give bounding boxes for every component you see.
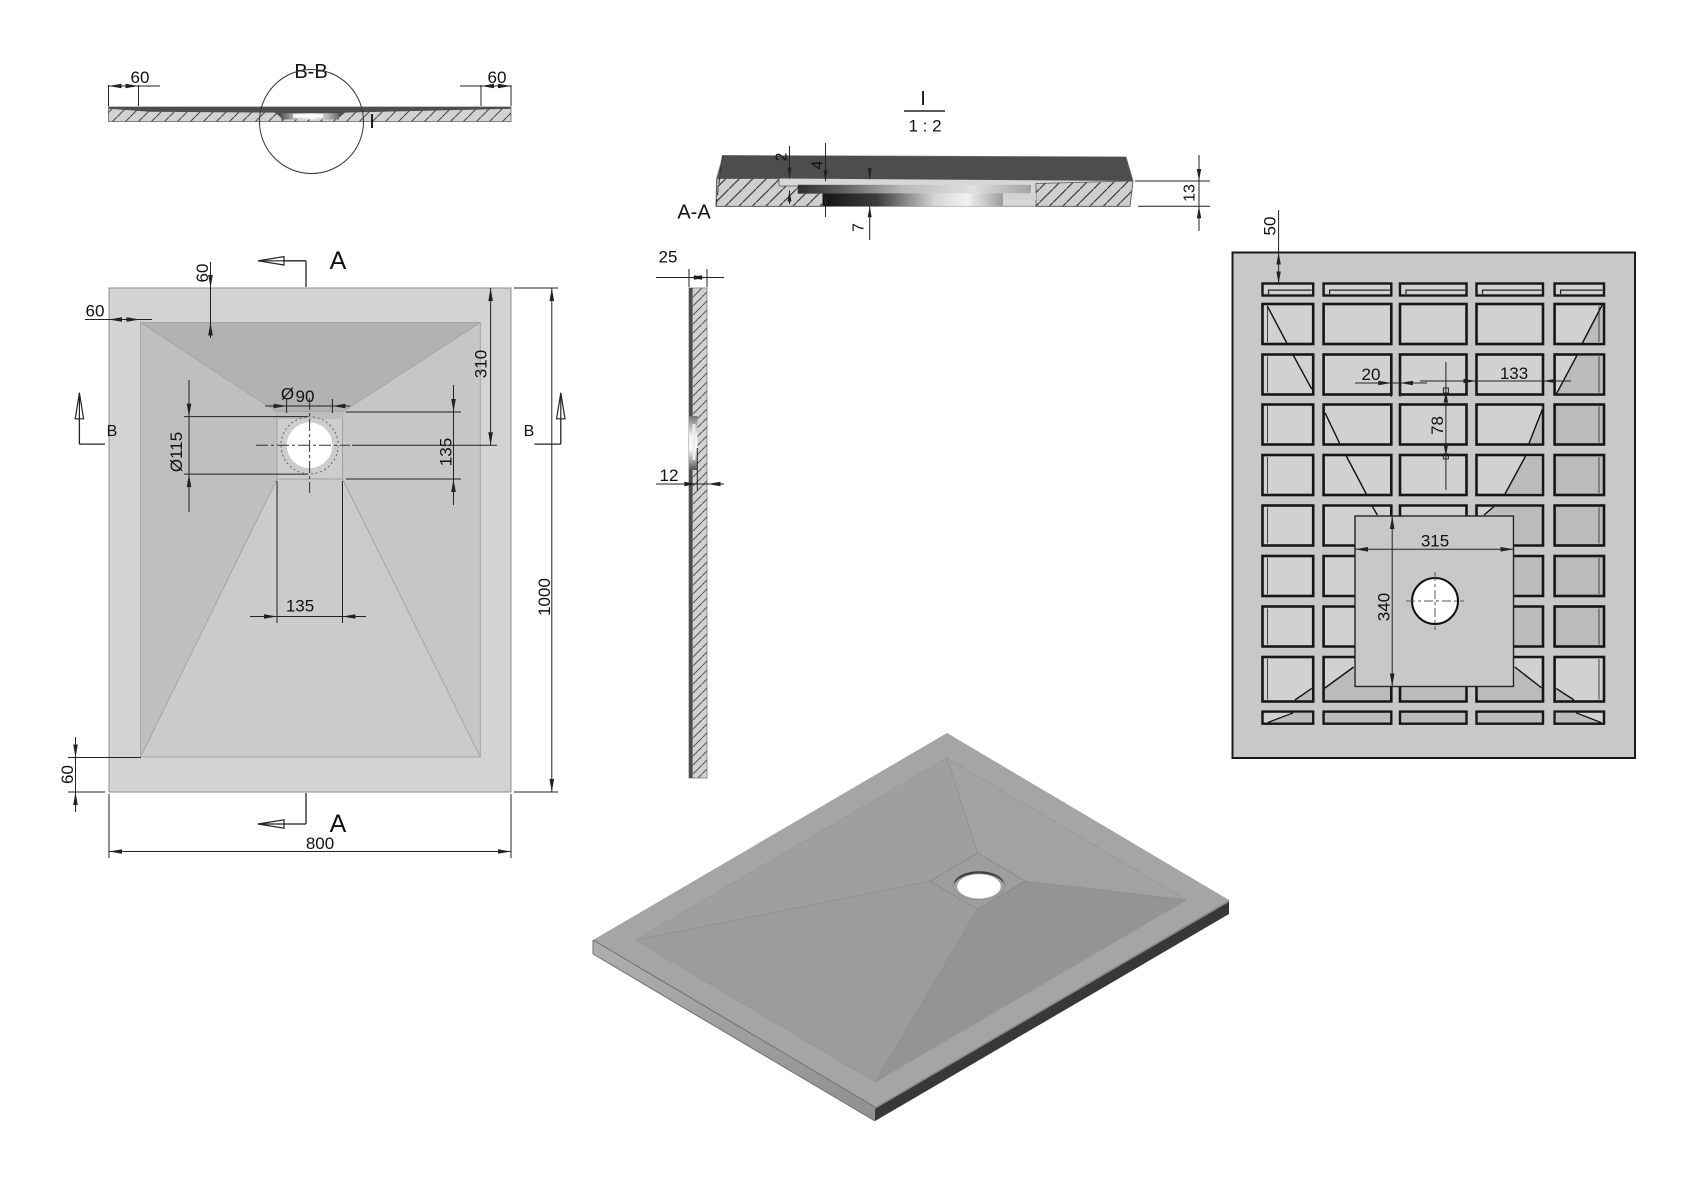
svg-text:Ø115: Ø115 <box>167 432 186 472</box>
svg-text:2: 2 <box>774 152 791 161</box>
svg-text:60: 60 <box>86 302 105 321</box>
svg-text:A-A: A-A <box>677 202 711 224</box>
svg-text:60: 60 <box>58 765 77 784</box>
svg-text:315: 315 <box>1421 532 1449 551</box>
svg-text:A: A <box>330 247 347 275</box>
svg-text:Ø: Ø <box>281 385 294 404</box>
svg-text:4: 4 <box>810 160 827 169</box>
svg-text:340: 340 <box>1375 593 1394 621</box>
svg-text:12: 12 <box>660 466 679 485</box>
svg-text:25: 25 <box>659 248 678 267</box>
svg-text:20: 20 <box>1362 365 1381 384</box>
svg-text:50: 50 <box>1261 217 1280 236</box>
svg-text:7: 7 <box>851 223 868 232</box>
svg-text:1000: 1000 <box>535 578 554 616</box>
svg-text:60: 60 <box>193 264 212 283</box>
svg-text:800: 800 <box>306 834 334 853</box>
svg-text:310: 310 <box>472 350 491 378</box>
svg-text:1 : 2: 1 : 2 <box>908 117 941 136</box>
svg-text:78: 78 <box>1428 416 1447 435</box>
svg-text:135: 135 <box>437 438 456 466</box>
svg-text:60: 60 <box>488 68 507 87</box>
svg-text:B: B <box>107 423 118 440</box>
svg-text:I: I <box>369 111 375 133</box>
svg-text:90: 90 <box>296 387 315 406</box>
svg-text:B: B <box>524 423 535 440</box>
svg-text:133: 133 <box>1500 364 1528 383</box>
svg-text:I: I <box>920 88 926 110</box>
svg-text:B-B: B-B <box>294 61 327 83</box>
svg-text:13: 13 <box>1182 184 1199 202</box>
svg-text:60: 60 <box>131 68 150 87</box>
svg-text:135: 135 <box>286 597 314 616</box>
